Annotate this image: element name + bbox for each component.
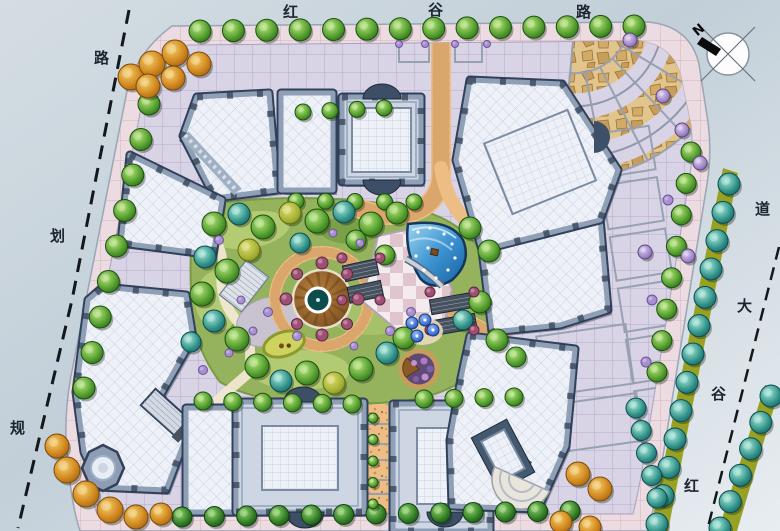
shrub (641, 357, 651, 367)
patio-umbrella (411, 330, 423, 342)
top-road-label-char: 谷 (428, 1, 444, 19)
shrub (469, 325, 479, 335)
right-road-label-char: 道 (755, 200, 770, 218)
shrub (484, 41, 491, 48)
shrub (342, 319, 353, 330)
top-road-label-char: 路 (576, 3, 592, 21)
shrub (469, 287, 479, 297)
shrub (356, 239, 364, 247)
right-road-label-char: 红 (684, 477, 699, 495)
shrub (342, 269, 353, 280)
shrub (264, 308, 273, 317)
shrub (386, 327, 395, 336)
left-road-label-char: 路 (94, 49, 110, 67)
shrub (350, 342, 358, 350)
top-road-label-char: 红 (283, 3, 298, 21)
shrub (292, 319, 303, 330)
shrub (237, 296, 245, 304)
shrub (249, 327, 257, 335)
shrub (199, 366, 208, 375)
shrub (293, 332, 302, 341)
shrub (316, 329, 328, 341)
shrub (425, 287, 435, 297)
shrub (329, 229, 337, 237)
left-road-label-char: 划 (50, 227, 65, 245)
shrub (452, 41, 459, 48)
patio-umbrella (419, 314, 431, 326)
shrub (292, 269, 303, 280)
right-road-label-char: 谷 (711, 385, 727, 403)
shrub (396, 41, 403, 48)
flower-planter (401, 351, 437, 387)
left-road-label-char: 规 (10, 419, 25, 437)
shrub (352, 293, 364, 305)
pond-island (430, 248, 438, 255)
shrub (375, 295, 385, 305)
shrub (422, 41, 429, 48)
fountain-center (316, 298, 320, 302)
shrub (663, 195, 673, 205)
shrub (225, 349, 233, 357)
patio-umbrella (427, 324, 439, 336)
shrub (647, 295, 657, 305)
shrub (316, 257, 328, 269)
site-plan-canvas: 红 谷 路 规 划 路 红 谷 大 道 N (0, 0, 780, 531)
atrium-skylight (262, 426, 338, 490)
building-north-center (281, 84, 425, 195)
shrub (215, 236, 224, 245)
patio-umbrella (406, 317, 418, 329)
shrub (375, 253, 385, 263)
shrub (407, 308, 416, 317)
shrub (337, 253, 347, 263)
master-plan-drawing: 红 谷 路 规 划 路 红 谷 大 道 N (0, 0, 780, 531)
shrub (337, 295, 347, 305)
right-road-label-char: 大 (737, 297, 752, 315)
shrub (280, 293, 292, 305)
